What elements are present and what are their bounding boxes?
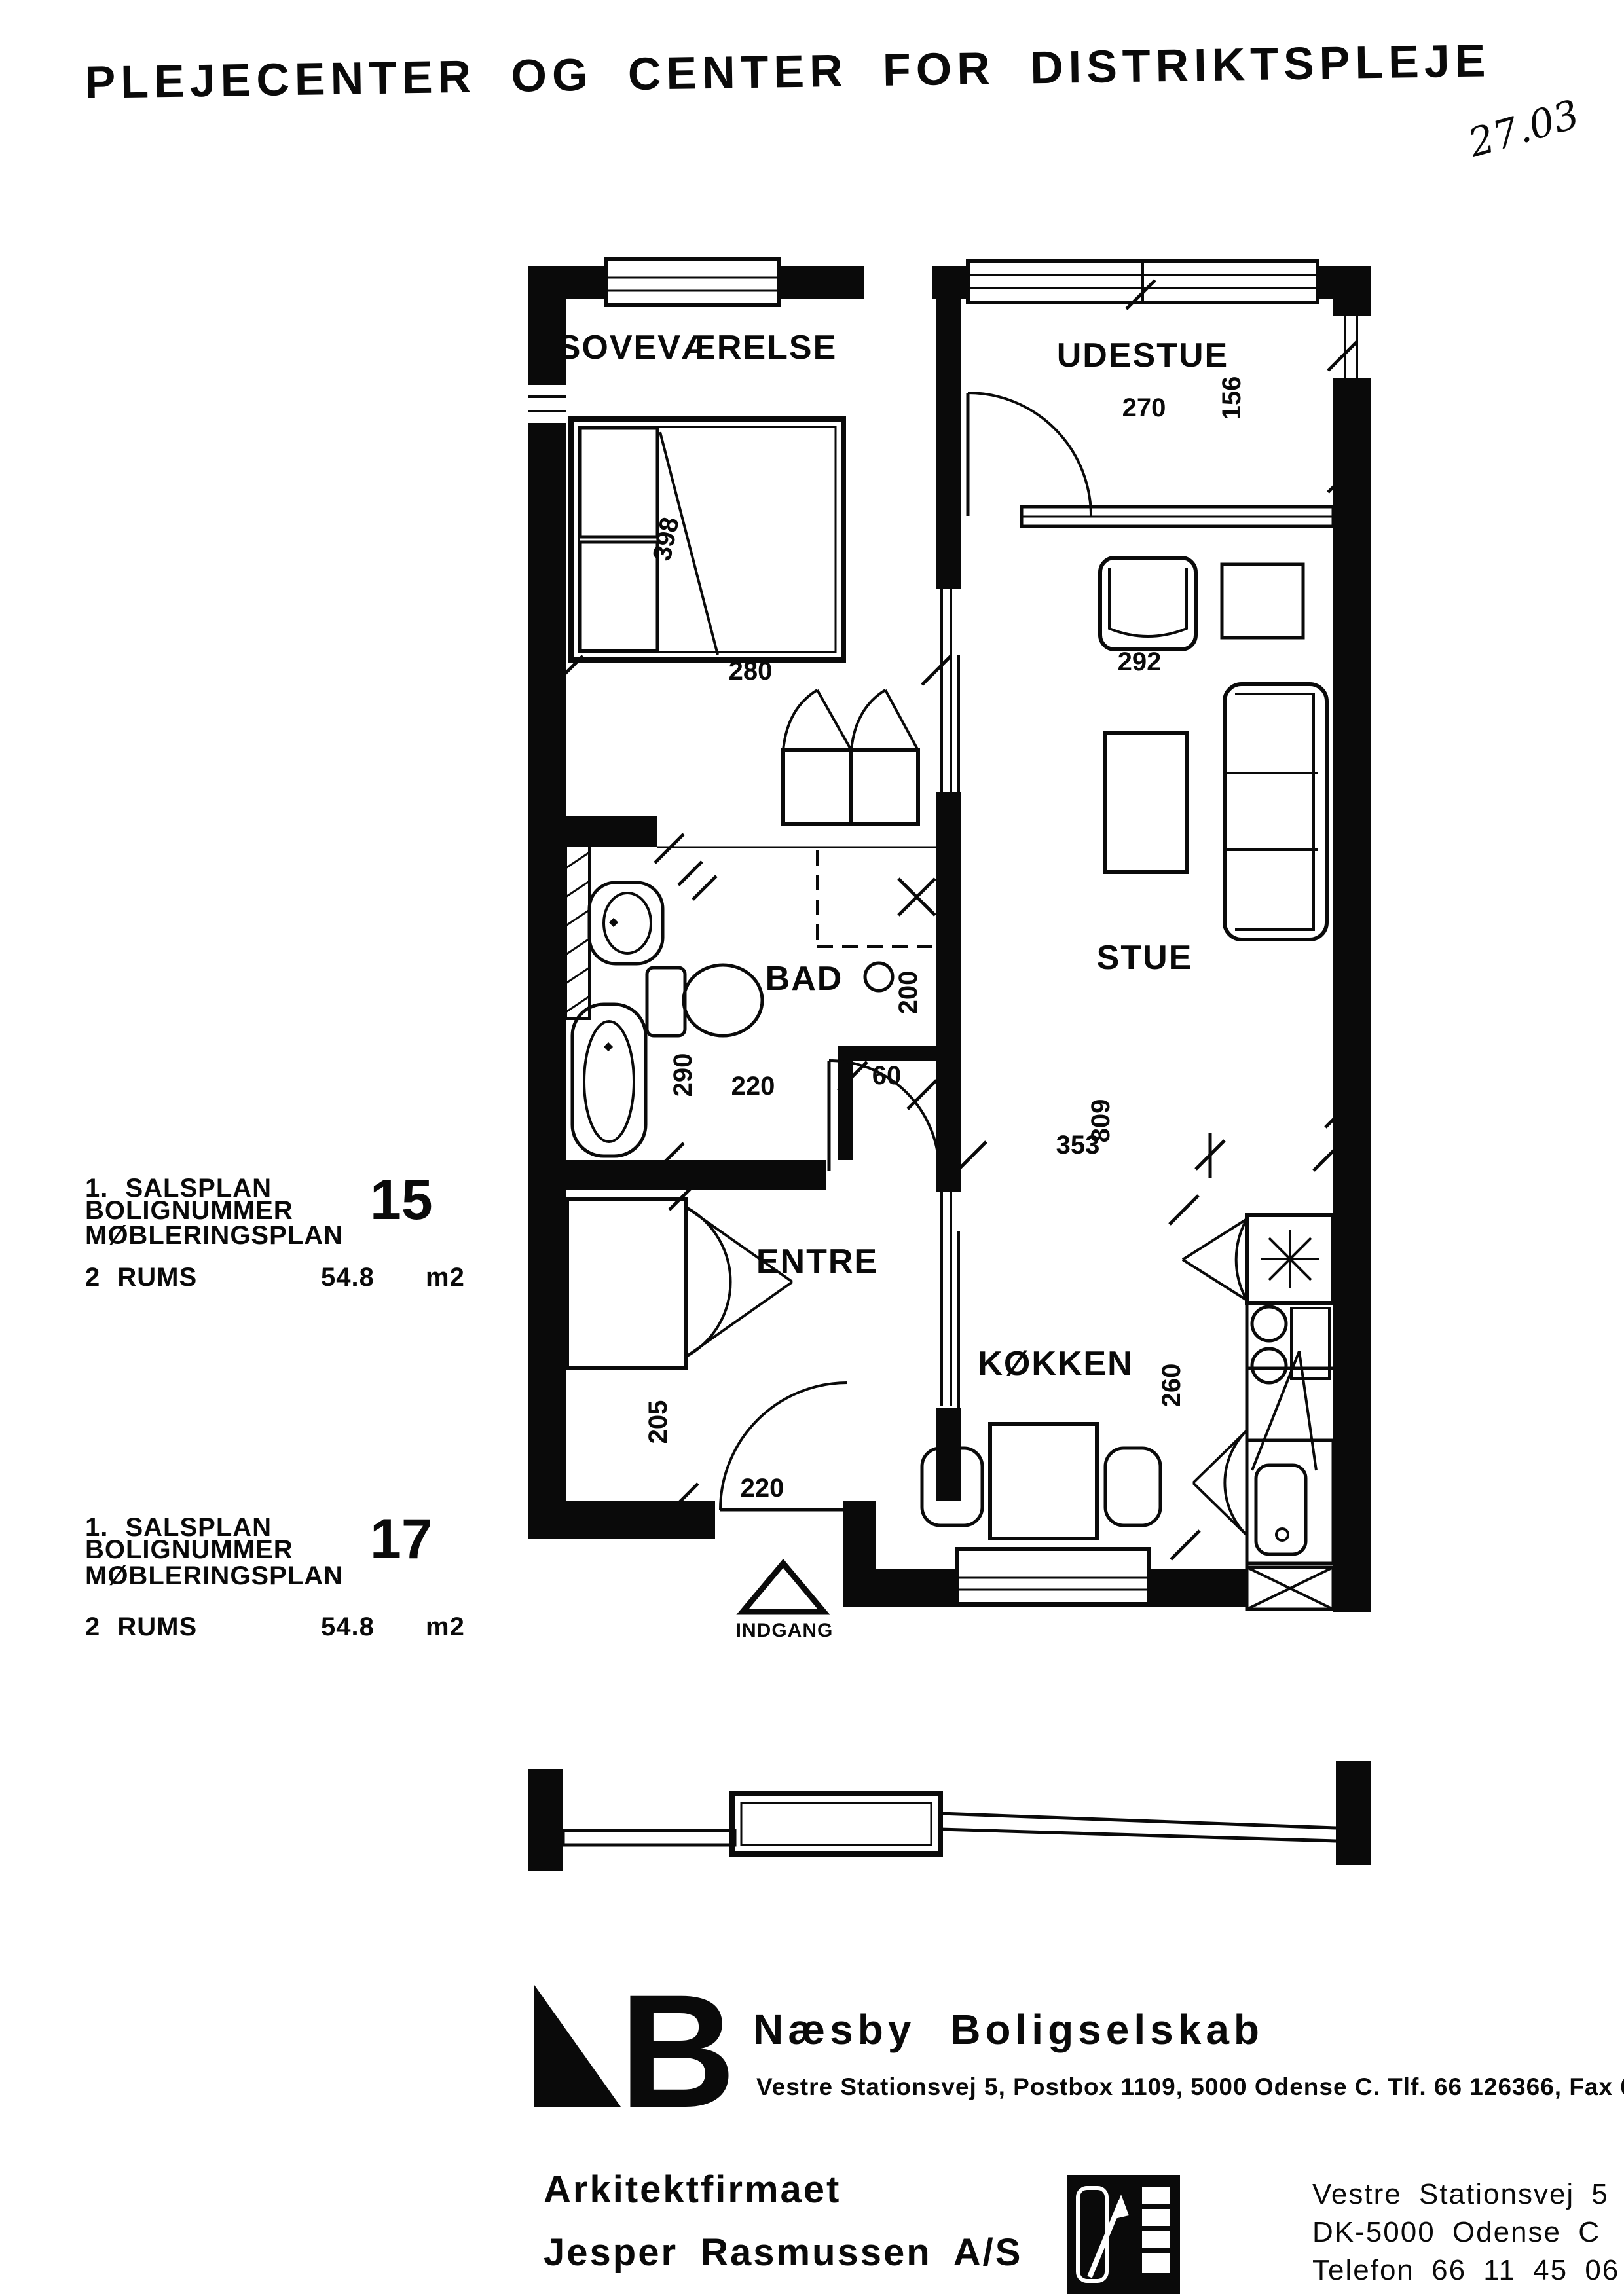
apartment-number: 15: [370, 1169, 433, 1231]
dim-shower: 200: [894, 971, 923, 1015]
armchair: [1100, 558, 1196, 649]
company-logo-icon: B: [534, 1961, 736, 2141]
sliding-door-bedroom-stue: [942, 589, 959, 812]
wall-left: [528, 266, 566, 1539]
door-udestue: [968, 393, 1091, 516]
rooms-line: 2 RUMS: [85, 1613, 197, 1641]
refrigerator-crossed-box: [1247, 1567, 1333, 1609]
info-block-17: 1. SALSPLAN BOLIGNUMMER 17 MØBLERINGSPLA…: [85, 1508, 465, 1641]
balcony-rail-right-bottom: [940, 1829, 1336, 1841]
wall-bottom-entre: [528, 1501, 715, 1539]
area-value: 54.8: [321, 1263, 375, 1292]
dim-bed-length: 398: [648, 515, 685, 563]
bed-pillow-bottom: [580, 542, 657, 651]
dim-bad-width: 220: [731, 1072, 775, 1101]
bathtub: [572, 1004, 646, 1156]
dim-entre-depth: 205: [644, 1400, 673, 1444]
label-entre: ENTRE: [756, 1243, 878, 1281]
bed-pillow-top: [580, 428, 657, 537]
entrance-label: INDGANG: [736, 1620, 834, 1641]
coffee-table: [1105, 733, 1187, 872]
balcony-rail-left: [563, 1831, 735, 1845]
doors: [720, 393, 1091, 1510]
wardrobes-bedroom: [783, 690, 918, 824]
cabinet-door-swing-lower: [1193, 1430, 1247, 1535]
label-bad: BAD: [766, 960, 843, 998]
window-left-wall: [528, 385, 566, 423]
architect-block: Arkitektfirmaet Jesper Rasmussen A/S Ves…: [544, 2168, 1619, 2294]
window-bedroom: [606, 259, 779, 305]
window-udestue-top: [968, 261, 1318, 302]
company-block: B Næsby Boligselskab Vestre Stationsvej …: [534, 1961, 1624, 2141]
scanned-floorplan-sheet: PLEJECENTER OG CENTER FOR DISTRIKTSPLEJE…: [0, 0, 1624, 2296]
dim-kokken-depth: 260: [1157, 1364, 1186, 1408]
wall-bedroom-bath: [566, 816, 657, 847]
dim-entre-width: 220: [741, 1474, 784, 1503]
number-label: BOLIGNUMMER: [85, 1535, 293, 1564]
balcony-rail-right-top: [940, 1813, 1336, 1828]
kitchen-counter: [1183, 1215, 1333, 1609]
architect-address-line2: DK-5000 Odense C: [1312, 2216, 1600, 2248]
washbasin: [589, 883, 663, 964]
balcony-section: [528, 1761, 1371, 1871]
bathroom-fixtures: [566, 846, 935, 1156]
area-unit: m2: [426, 1263, 465, 1292]
faucet-circle-1: [1252, 1307, 1286, 1341]
company-address: Vestre Stationsvej 5, Postbox 1109, 5000…: [756, 2073, 1624, 2100]
label-udestue: UDESTUE: [1057, 337, 1228, 374]
mirror-strip: [566, 846, 589, 1019]
entrance-triangle-icon: [743, 1563, 824, 1612]
balcony-post-left: [528, 1769, 563, 1871]
company-name: Næsby Boligselskab: [753, 2006, 1264, 2053]
floorplan-canvas: PLEJECENTER OG CENTER FOR DISTRIKTSPLEJE…: [0, 0, 1624, 2296]
dim-niche: 60: [872, 1061, 902, 1090]
wardrobe-entre: [567, 1199, 792, 1368]
cabinet-door-swing-upper: [1183, 1219, 1247, 1300]
plan-line: MØBLERINGSPLAN: [85, 1221, 343, 1250]
kitchen-sink: [1247, 1440, 1333, 1563]
balcony-post-right: [1336, 1761, 1371, 1865]
wall-partition-lower: [936, 1408, 961, 1501]
dim-stue-bay: 292: [1118, 647, 1162, 676]
architect-name-line1: Arkitektfirmaet: [544, 2168, 841, 2211]
label-kokken: KØKKEN: [978, 1345, 1133, 1383]
area-value: 54.8: [321, 1613, 375, 1641]
dim-udestue-width: 270: [1122, 393, 1166, 422]
sliding-door-entre-kitchen: [942, 1192, 959, 1408]
side-table: [1222, 564, 1303, 638]
dining-table: [990, 1424, 1097, 1539]
dim-bad-depth: 290: [669, 1053, 697, 1097]
shower-drain: [865, 963, 893, 991]
area-unit: m2: [426, 1613, 465, 1641]
wall-partition-mid: [936, 792, 961, 1192]
architect-address-line3: Telefon 66 11 45 06: [1312, 2254, 1619, 2286]
dim-udestue-depth: 156: [1217, 376, 1246, 420]
bed: [571, 419, 843, 660]
company-logo-b: B: [619, 1961, 736, 2141]
handwritten-date-note: 27.03: [1463, 92, 1584, 167]
sofa: [1225, 684, 1327, 939]
dining-chair-right: [1105, 1448, 1160, 1525]
apartment-number: 17: [370, 1508, 433, 1571]
dim-kokken-width: 353: [1056, 1131, 1100, 1159]
info-block-15: 1. SALSPLAN BOLIGNUMMER 15 MØBLERINGSPLA…: [85, 1169, 465, 1292]
stove-burner-symbol: [1261, 1230, 1319, 1288]
window-kitchen: [957, 1549, 1149, 1604]
dim-bed-width: 280: [729, 657, 773, 685]
rooms-line: 2 RUMS: [85, 1263, 197, 1292]
plan-line: MØBLERINGSPLAN: [85, 1561, 343, 1590]
wall-partition-upper: [936, 299, 961, 589]
wall-bath-entre: [566, 1160, 826, 1190]
architect-name-line2: Jesper Rasmussen A/S: [544, 2231, 1022, 2274]
architect-address-line1: Vestre Stationsvej 5: [1312, 2178, 1609, 2210]
window-udestue-bottom: [1022, 507, 1333, 526]
label-sovevaerelse: SOVEVÆRELSE: [558, 329, 838, 367]
label-stue: STUE: [1097, 939, 1193, 977]
faucet-circle-2: [1252, 1349, 1286, 1383]
toilet: [647, 965, 762, 1036]
entrance-marker: INDGANG: [736, 1563, 834, 1641]
architect-stamp-icon: [1067, 2175, 1180, 2294]
wall-niche-top: [838, 1046, 938, 1061]
sheet-title: PLEJECENTER OG CENTER FOR DISTRIKTSPLEJE: [84, 35, 1491, 108]
